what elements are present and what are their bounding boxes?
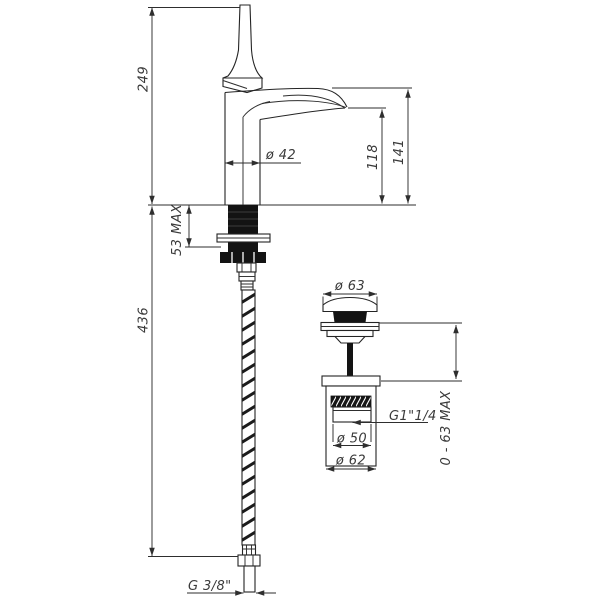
- dim-118-label: 118: [366, 144, 381, 170]
- braided-hose: [242, 290, 255, 545]
- dim-g114-label: G1"1/4: [389, 409, 437, 424]
- dim-42-label: ø 42: [265, 148, 296, 163]
- hose-end-fitting: [243, 545, 256, 555]
- waste-stem: [347, 343, 353, 376]
- spout-top-edge: [225, 88, 347, 107]
- waste-taper: [335, 337, 365, 344]
- hose-connector: [237, 263, 256, 272]
- dim-63-label: ø 63: [334, 279, 365, 294]
- threaded-shank-assembly: [217, 205, 270, 290]
- waste-flange-plate-2: [327, 331, 373, 337]
- waste-seal: [333, 312, 367, 323]
- drawing-sheet: 249 436 53 MAX ø 42 118 141 G 3/8" ø 63 …: [0, 0, 600, 600]
- faucet-body: [223, 5, 347, 205]
- hose-end-nut: [238, 555, 260, 566]
- dim-436-label: 436: [137, 307, 152, 333]
- waste-thread-band: [331, 396, 371, 407]
- handle-lever: [223, 5, 262, 78]
- dim-62-label: ø 62: [335, 454, 366, 469]
- dim-249-label: 249: [137, 66, 152, 92]
- waste-socket: [333, 407, 371, 422]
- spout-underside: [260, 108, 345, 120]
- dim-141-label: 141: [392, 139, 407, 165]
- supply-hose: [238, 290, 260, 592]
- dim-0-63-label: 0 - 63 MAX: [439, 390, 454, 466]
- dim-53-label: 53 MAX: [170, 203, 185, 256]
- technical-drawing: 249 436 53 MAX ø 42 118 141 G 3/8" ø 63 …: [0, 0, 600, 600]
- waste-cap: [323, 298, 377, 312]
- spout-root-curve: [243, 102, 270, 118]
- inlet-tube: [244, 566, 255, 592]
- waste-top-plate: [322, 376, 380, 386]
- dim-50-label: ø 50: [336, 432, 367, 447]
- compression-fitting: [241, 281, 253, 290]
- dim-g38-label: G 3/8": [188, 579, 232, 594]
